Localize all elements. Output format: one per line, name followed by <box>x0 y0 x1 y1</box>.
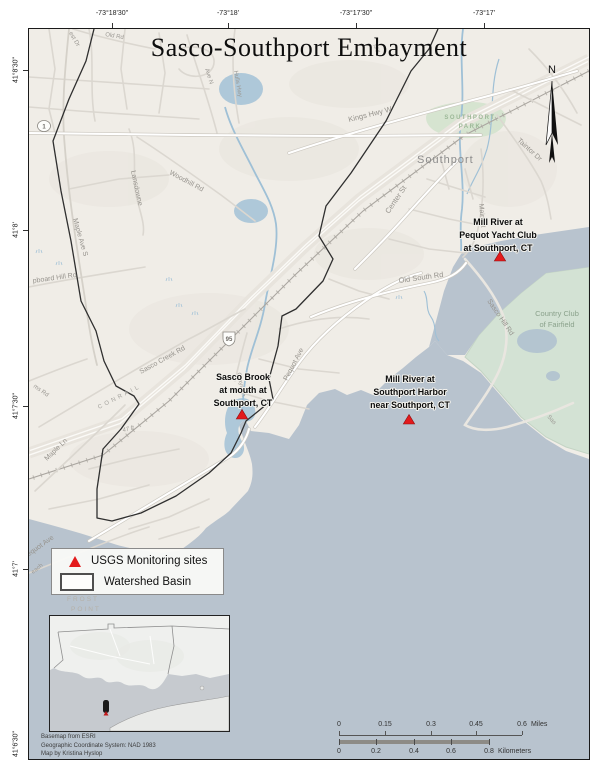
scale-unit-label: Kilometers <box>498 748 531 755</box>
map-canvas: 95 1 Old Rd est Dr Ave N Hulls Hwy Mill … <box>28 28 590 760</box>
map-title: Sasco-Southport Embayment <box>29 33 589 63</box>
place-label-southport-park: SOUTHPORT <box>444 115 495 121</box>
inset-locator-map <box>49 615 230 732</box>
scale-tick <box>522 731 523 735</box>
scale-unit-label: Miles <box>531 721 547 728</box>
scale-tick <box>431 731 432 735</box>
map-credits: Basemap from ESRI Geographic Coordinate … <box>41 733 156 759</box>
us1-shield: 1 <box>38 121 51 132</box>
place-label-country-club: Country Club <box>535 309 579 318</box>
scale-tick-label: 0.6 <box>517 721 527 728</box>
scale-tick-label: 0 <box>337 748 341 755</box>
longitude-label: -73°17' <box>473 10 495 17</box>
scale-tick-label: 0.6 <box>446 748 456 755</box>
longitude-label: -73°18' <box>217 10 239 17</box>
scale-tick <box>451 739 452 745</box>
site-label: Pequot Yacht Club <box>459 230 537 240</box>
i95-shield: 95 <box>223 332 235 346</box>
site-label: at mouth at <box>219 385 266 395</box>
site-label: Mill River at <box>473 217 522 227</box>
usgs-site-legend-icon <box>69 556 81 567</box>
road-label: Maple Ave S <box>71 218 89 258</box>
scale-tick-label: 0.8 <box>484 748 494 755</box>
legend-label: USGS Monitoring sites <box>91 555 207 567</box>
miles-scale-line <box>339 735 522 736</box>
road-label: Center St <box>383 183 409 215</box>
latitude-label: 41°7'30" <box>13 393 20 419</box>
site-label: Sasco Brook <box>216 372 270 382</box>
place-label-southport: Southport <box>417 154 474 166</box>
legend-row-monitoring: USGS Monitoring sites <box>60 552 223 570</box>
scale-tick <box>476 731 477 735</box>
scale-tick-label: 0.3 <box>426 721 436 728</box>
site-label: Southport, CT <box>214 398 273 408</box>
inset-map <box>50 616 229 731</box>
longitude-label: -73°17'30" <box>340 10 372 17</box>
longitude-label: -73°18'30" <box>96 10 128 17</box>
site-label: Mill River at <box>385 374 434 384</box>
place-label-frost-point: FROST <box>67 596 99 603</box>
latitude-label: 41°8'30" <box>13 57 20 83</box>
latitude-label: 41°6'30" <box>13 731 20 757</box>
scale-tick-label: 0.2 <box>371 748 381 755</box>
road-label: pboard Hill Rd <box>32 272 77 285</box>
road-label: Ave N <box>203 68 214 85</box>
credit-line: Geographic Coordinate System: NAD 1983 <box>41 742 156 751</box>
legend-label: Watershed Basin <box>104 576 191 588</box>
scale-tick <box>489 739 490 745</box>
scale-tick-label: 0.45 <box>469 721 483 728</box>
watershed-legend-swatch <box>60 573 94 591</box>
north-arrow-blade <box>546 81 552 145</box>
scale-tick <box>339 731 340 735</box>
road-label: ms Rd <box>32 384 50 399</box>
scale-tick <box>376 739 377 745</box>
scale-tick-label: 0.4 <box>409 748 419 755</box>
scale-tick <box>339 739 340 745</box>
credit-line: Map by Kristina Hyslop <box>41 750 156 759</box>
site-label: Southport Harbor <box>373 387 447 397</box>
site-label: at Southport, CT <box>464 243 534 253</box>
scale-tick <box>385 731 386 735</box>
place-label-country-club: of Fairfield <box>539 320 574 329</box>
place-label-southport-park: PARK <box>459 124 482 130</box>
scale-tick <box>414 739 415 745</box>
i95-shield-number: 95 <box>226 337 233 343</box>
road-label: Pequot Ave <box>283 347 306 382</box>
golf-pond <box>517 329 557 353</box>
credit-line: Basemap from ESRI <box>41 733 156 742</box>
place-label-frost-point: POINT <box>71 606 101 613</box>
latitude-label: 41°8' <box>13 222 20 238</box>
latitude-label: 41°7' <box>13 561 20 577</box>
scale-tick-label: 0.15 <box>378 721 392 728</box>
north-arrow-label: N <box>548 64 556 76</box>
scale-tick-label: 0 <box>337 721 341 728</box>
legend-row-watershed: Watershed Basin <box>60 573 223 591</box>
legend: USGS Monitoring sites Watershed Basin <box>51 548 224 595</box>
golf-pond <box>546 371 560 381</box>
brook-pond <box>234 199 268 223</box>
site-label: near Southport, CT <box>370 400 450 410</box>
road-label: Woodhill Rd <box>168 170 205 194</box>
map-sheet: -73°18'30" -73°18' -73°17'30" -73°17' 41… <box>0 0 600 776</box>
